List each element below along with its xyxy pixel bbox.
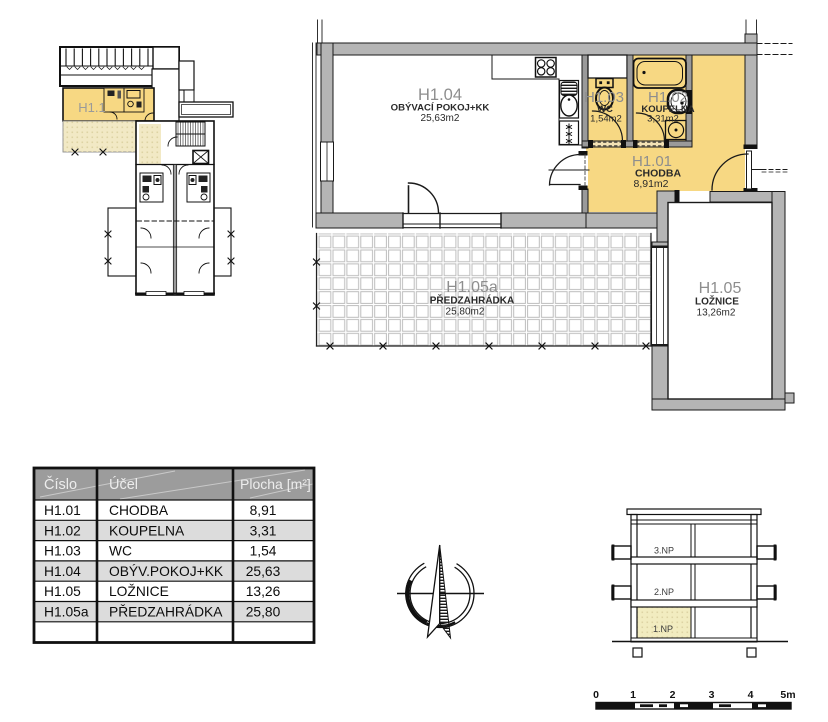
svg-text:LOŽNICE: LOŽNICE	[109, 583, 169, 599]
svg-text:H1.02: H1.02	[44, 523, 81, 538]
svg-text:1: 1	[630, 689, 636, 701]
svg-text:PŘEDZAHRÁDKA: PŘEDZAHRÁDKA	[430, 294, 514, 307]
svg-text:3.NP: 3.NP	[654, 546, 674, 556]
svg-text:H1.05a: H1.05a	[44, 605, 89, 620]
svg-text:H1.1: H1.1	[78, 100, 105, 115]
svg-text:Číslo: Číslo	[44, 476, 77, 493]
svg-text:0: 0	[593, 689, 599, 701]
svg-text:OBÝVACÍ POKOJ+KK: OBÝVACÍ POKOJ+KK	[391, 102, 490, 114]
svg-text:H1.04: H1.04	[418, 86, 462, 104]
svg-text:OBÝV.POKOJ+KK: OBÝV.POKOJ+KK	[109, 563, 224, 579]
svg-text:1,54: 1,54	[250, 544, 277, 559]
svg-text:H1.03: H1.03	[44, 544, 81, 559]
svg-text:25,80m2: 25,80m2	[446, 307, 485, 318]
svg-text:1.NP: 1.NP	[653, 624, 673, 634]
svg-text:CHODBA: CHODBA	[109, 503, 169, 518]
svg-text:LOŽNICE: LOŽNICE	[695, 295, 739, 308]
svg-text:3,31m2: 3,31m2	[647, 114, 679, 125]
svg-text:4: 4	[748, 689, 754, 701]
svg-text:13,26: 13,26	[246, 584, 281, 599]
svg-text:KOUPELNA: KOUPELNA	[109, 523, 185, 538]
svg-text:8,91m2: 8,91m2	[633, 178, 668, 190]
svg-text:25,63m2: 25,63m2	[421, 113, 460, 124]
svg-text:8,91: 8,91	[250, 503, 277, 518]
svg-text:25,80: 25,80	[246, 605, 281, 620]
svg-text:H1.05: H1.05	[44, 584, 81, 599]
svg-text:WC: WC	[109, 544, 132, 559]
svg-text:H1.05: H1.05	[699, 280, 742, 297]
svg-text:3: 3	[709, 689, 715, 701]
svg-text:25,63: 25,63	[246, 564, 281, 579]
svg-text:Plocha [m²]: Plocha [m²]	[240, 476, 311, 492]
svg-text:H1.05a: H1.05a	[446, 279, 498, 296]
svg-text:5m: 5m	[780, 689, 795, 701]
svg-text:2: 2	[670, 689, 676, 701]
svg-text:H1.04: H1.04	[44, 564, 81, 579]
svg-text:2.NP: 2.NP	[654, 587, 674, 597]
svg-text:13,26m2: 13,26m2	[697, 308, 736, 319]
svg-text:1,54m2: 1,54m2	[590, 114, 622, 125]
svg-text:Účel: Účel	[109, 476, 138, 493]
svg-text:PŘEDZAHRÁDKA: PŘEDZAHRÁDKA	[109, 604, 223, 620]
svg-text:H1.01: H1.01	[44, 503, 81, 518]
svg-text:3,31: 3,31	[250, 523, 277, 538]
